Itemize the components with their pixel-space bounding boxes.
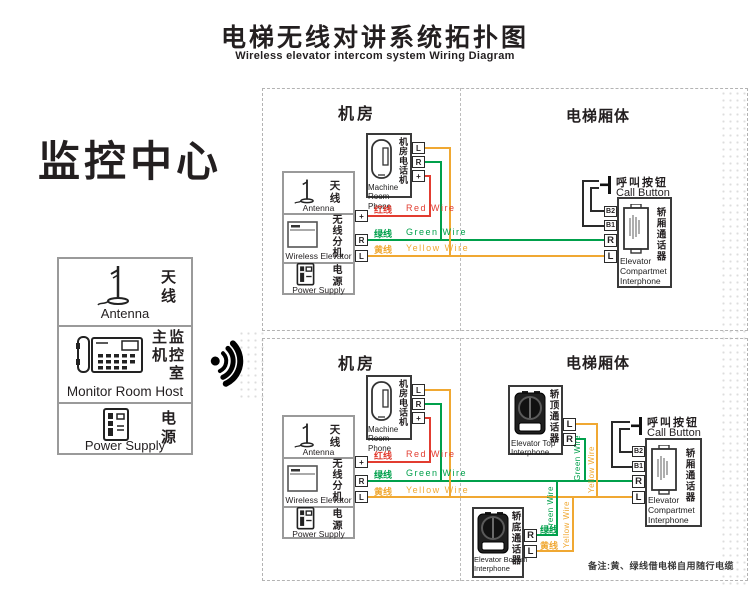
yellow-wire-label-cn-1: 黄线 xyxy=(374,243,392,256)
call-button-lead xyxy=(590,187,592,212)
terminal-b1: B1 xyxy=(604,220,617,231)
green-wire-label-cn-2: 绿线 xyxy=(374,468,392,481)
bottom-interphone-label-en: Elevator Bottom Interphone xyxy=(474,556,530,574)
compartment-label-en-1: Elevator Compartmet Interphone xyxy=(620,256,672,286)
antenna-label-cn: 天线 xyxy=(160,269,175,307)
divider xyxy=(59,325,191,327)
yellow-wire-label-cn-2: 黄线 xyxy=(374,485,392,498)
red-wire-label-en-1: Red Wire xyxy=(406,203,456,213)
wireless-signal-icon xyxy=(200,330,264,398)
desk-phone-icon xyxy=(76,330,148,380)
terminal-l: L xyxy=(524,545,537,558)
yellow-wire xyxy=(425,147,451,149)
red-wire-label-en-2: Red Wire xyxy=(406,449,456,459)
yellow-wire xyxy=(596,423,598,498)
call-button-label-en-2: Call Button xyxy=(647,427,701,439)
yellow-wire xyxy=(576,423,598,425)
call-button-lead xyxy=(611,421,613,468)
call-button-lead xyxy=(582,225,605,227)
divider xyxy=(284,457,353,459)
yellow-wire xyxy=(572,497,574,552)
section-machine-room-2: 机房 xyxy=(338,350,376,374)
terminal-r: R xyxy=(604,234,617,247)
wiring-diagram-page: 电梯无线对讲系统拓扑图 Wireless elevator intercom s… xyxy=(0,0,750,589)
antenna-icon xyxy=(293,419,321,450)
wireless-unit-icon xyxy=(287,465,318,492)
yellow-wire-label-cn-3: 黄线 xyxy=(540,539,558,552)
terminal-r: R xyxy=(355,475,368,487)
call-button-label-en-1: Call Button xyxy=(616,187,670,199)
power-supply-icon xyxy=(103,408,129,442)
terminal-r: R xyxy=(524,529,537,542)
green-wire-label-en-1: Green Wire xyxy=(406,227,467,237)
terminal-r: R xyxy=(412,398,425,410)
section-elevator-body-2: 电梯厢体 xyxy=(566,352,630,373)
green-wire xyxy=(584,438,586,482)
host-label-cn: 监控室主机 xyxy=(150,329,184,385)
push-button-icon xyxy=(629,415,645,437)
terminal-plus: + xyxy=(412,412,425,424)
section-elevator-body-1: 电梯厢体 xyxy=(566,105,630,126)
terminal-plus: + xyxy=(355,456,368,468)
rack-wireless-en-1: Wireless Elevator xyxy=(280,251,357,261)
green-wire-label-en-2: Green Wire xyxy=(406,468,467,478)
machine-phone-label-cn-2: 机房电话机 xyxy=(398,379,407,427)
top-interphone-label-en: Elevator Top Interphone xyxy=(511,439,561,458)
compartment-label-cn-1: 轿厢通话器 xyxy=(655,207,665,262)
divider xyxy=(284,213,353,215)
divider xyxy=(284,506,353,508)
terminal-b2: B2 xyxy=(632,446,645,457)
rack-antenna-cn-1: 天线 xyxy=(329,180,340,205)
yellow-wire-vertical-label-1: Yellow Wire xyxy=(587,446,596,493)
top-interphone-label-cn: 轿顶通话器 xyxy=(548,389,558,444)
terminal-l: L xyxy=(604,250,617,263)
rack-antenna-en-2: Antenna xyxy=(282,447,355,457)
host-label-en: Monitor Room Host xyxy=(57,384,193,399)
call-button-lead xyxy=(611,466,633,468)
rack-antenna-en-1: Antenna xyxy=(282,203,355,213)
call-button-lead xyxy=(619,428,621,453)
green-wire-vertical-label-1: Green Wire xyxy=(573,435,582,481)
rack-antenna-cn-2: 天线 xyxy=(329,424,340,449)
wireless-unit-icon xyxy=(287,221,318,248)
power-supply-icon xyxy=(296,507,315,530)
terminal-l: L xyxy=(632,491,645,504)
compartment-label-en-2: Elevator Compartmet Interphone xyxy=(648,495,702,525)
terminal-l: L xyxy=(563,418,576,431)
antenna-icon xyxy=(95,261,141,307)
phone-handset-icon xyxy=(370,139,394,181)
section-machine-room-1: 机房 xyxy=(338,100,376,124)
page-title: 电梯无线对讲系统拓扑图 xyxy=(185,18,565,54)
terminal-l: L xyxy=(412,384,425,396)
machine-phone-label-cn-1: 机房电话机 xyxy=(398,137,407,185)
monitor-center-title: 监控中心 xyxy=(38,128,222,189)
yellow-wire-vertical-label-2: Yellow Wire xyxy=(562,501,571,548)
push-button-icon xyxy=(598,174,614,196)
green-wire-label-cn-1: 绿线 xyxy=(374,227,392,240)
phone-handset-icon xyxy=(370,381,394,423)
call-button-lead xyxy=(619,451,633,453)
rack-power-en-2: Power Supply xyxy=(282,529,355,539)
yellow-wire xyxy=(368,496,633,498)
call-button-lead xyxy=(612,421,630,423)
divider xyxy=(284,262,353,264)
speaker-interphone-icon xyxy=(514,391,546,437)
call-button-lead xyxy=(582,180,584,227)
terminal-l: L xyxy=(355,491,368,503)
antenna-label-en: Antenna xyxy=(57,306,193,321)
red-wire-label-cn-1: 红线 xyxy=(374,203,392,216)
terminal-l: L xyxy=(412,142,425,154)
terminal-b1: B1 xyxy=(632,461,645,472)
green-wire-vertical-label-2: Green Wire xyxy=(546,486,555,532)
panel-interphone-icon xyxy=(650,445,678,495)
panel-2-divider xyxy=(460,338,461,581)
divider xyxy=(59,402,191,404)
terminal-r: R xyxy=(412,156,425,168)
footnote: 备注:黄、绿线借电梯自用随行电缆 xyxy=(588,559,734,572)
page-subtitle: Wireless elevator intercom system Wiring… xyxy=(185,50,565,62)
terminal-b2: B2 xyxy=(604,206,617,217)
antenna-icon xyxy=(293,175,321,206)
rack-power-en-1: Power Supply xyxy=(282,285,355,295)
terminal-plus: + xyxy=(355,210,368,222)
yellow-wire xyxy=(425,389,451,391)
yellow-wire xyxy=(368,255,605,257)
yellow-wire xyxy=(449,389,451,498)
yellow-wire-label-en-1: Yellow Wire xyxy=(406,243,469,253)
panel-1-divider xyxy=(460,88,461,331)
yellow-wire-label-en-2: Yellow Wire xyxy=(406,485,469,495)
power-label-en: Power Supply xyxy=(57,438,193,453)
yellow-wire xyxy=(449,147,451,257)
speaker-interphone-icon xyxy=(477,512,509,556)
terminal-plus: + xyxy=(412,170,425,182)
panel-interphone-icon xyxy=(622,204,650,254)
green-wire xyxy=(368,239,605,241)
red-wire-label-cn-2: 红线 xyxy=(374,449,392,462)
rack-wireless-en-2: Wireless Elevator xyxy=(280,495,357,505)
call-button-lead xyxy=(583,180,599,182)
power-supply-icon xyxy=(296,263,315,286)
terminal-l: L xyxy=(355,250,368,262)
call-button-lead xyxy=(590,210,605,212)
terminal-r: R xyxy=(355,234,368,246)
terminal-r: R xyxy=(632,475,645,488)
